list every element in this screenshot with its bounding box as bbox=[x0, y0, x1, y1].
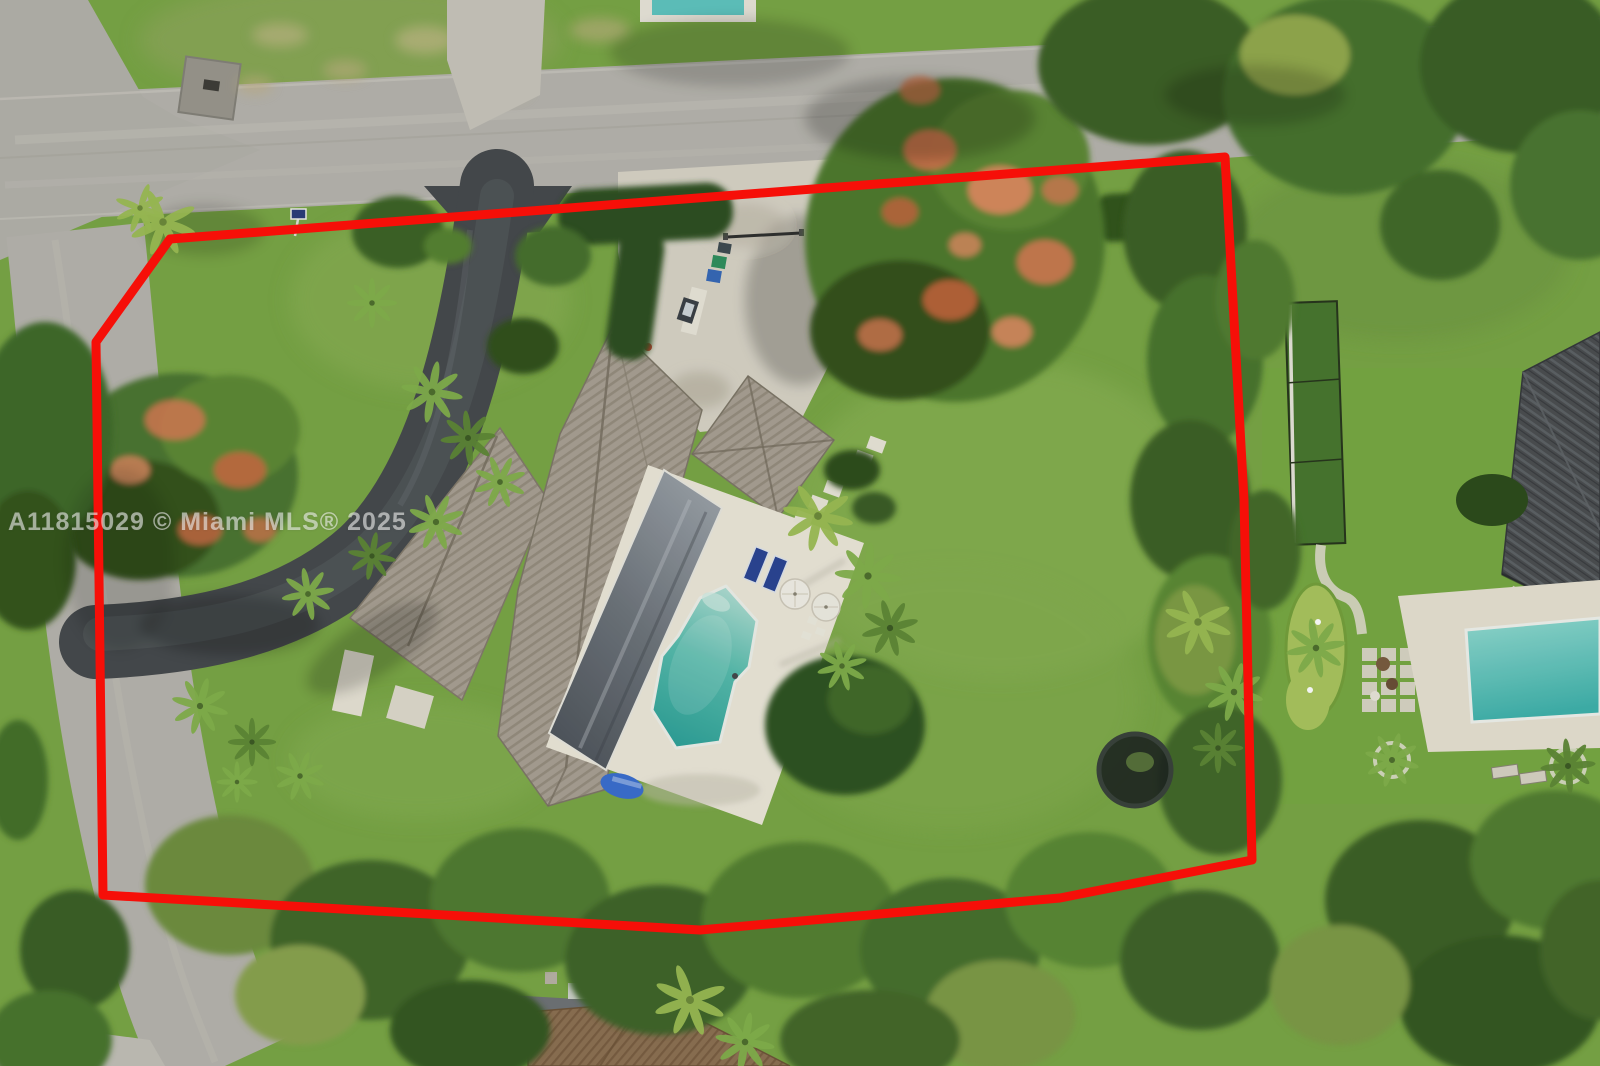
aerial-photo: A11815029 © Miami MLS® 2025 bbox=[0, 0, 1600, 1066]
mls-watermark: A11815029 © Miami MLS® 2025 bbox=[8, 508, 407, 537]
